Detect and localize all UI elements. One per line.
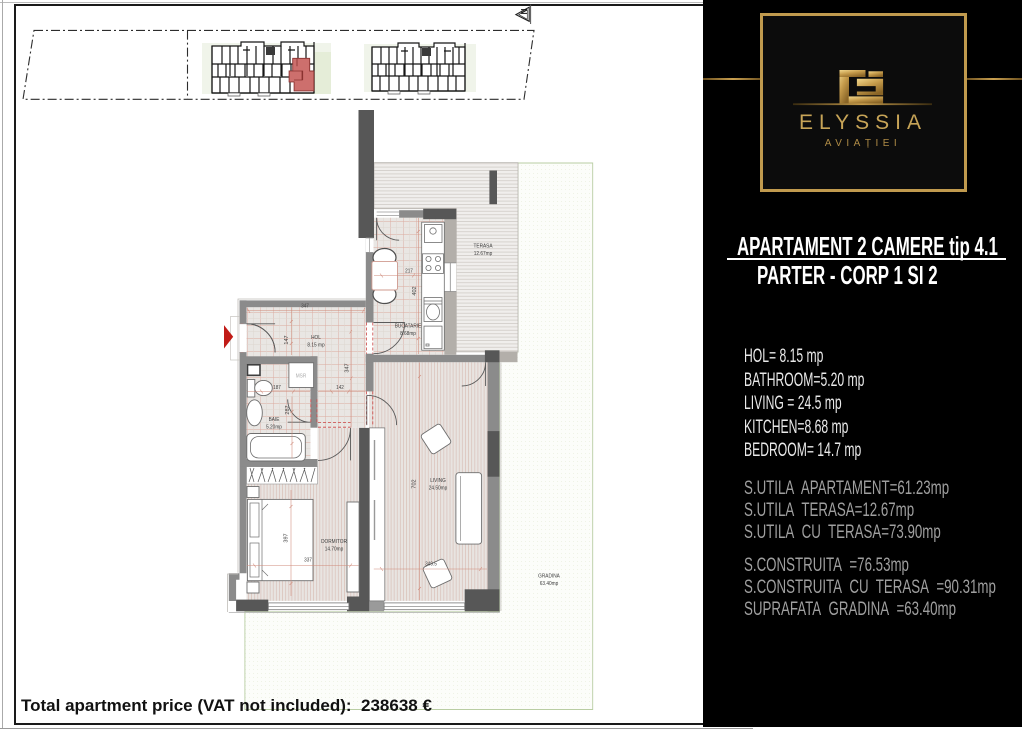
svg-text:287: 287 (285, 405, 291, 414)
svg-text:337: 337 (304, 557, 312, 563)
svg-text:BUCATARIE: BUCATARIE (395, 323, 422, 330)
svg-text:HOL: HOL (311, 335, 321, 342)
svg-text:187: 187 (273, 385, 281, 391)
svg-text:147: 147 (284, 335, 290, 344)
svg-text:217: 217 (405, 268, 413, 274)
svg-text:DORMITOR: DORMITOR (321, 539, 347, 546)
svg-text:5.20mp: 5.20mp (266, 424, 282, 431)
svg-text:347: 347 (301, 303, 309, 309)
svg-text:8.15 mp: 8.15 mp (307, 342, 324, 349)
svg-text:MSR: MSR (296, 373, 307, 380)
svg-text:12.67mp: 12.67mp (474, 250, 493, 257)
svg-text:397: 397 (284, 533, 290, 542)
svg-text:BAIE: BAIE (269, 417, 280, 424)
svg-text:63.40mp: 63.40mp (540, 580, 559, 587)
svg-text:402: 402 (412, 286, 418, 295)
svg-text:N: N (520, 8, 529, 14)
svg-text:142: 142 (336, 385, 344, 391)
svg-text:LIVING: LIVING (430, 478, 446, 485)
svg-text:347: 347 (345, 363, 351, 372)
svg-text:702: 702 (412, 479, 418, 488)
svg-text:24.50mp: 24.50mp (429, 485, 448, 492)
svg-text:TERASA: TERASA (473, 243, 492, 250)
svg-text:349.5: 349.5 (425, 561, 437, 567)
svg-text:14.70mp: 14.70mp (325, 546, 344, 553)
svg-text:8.68mp: 8.68mp (400, 330, 416, 337)
svg-text:GRADINA: GRADINA (538, 573, 560, 580)
